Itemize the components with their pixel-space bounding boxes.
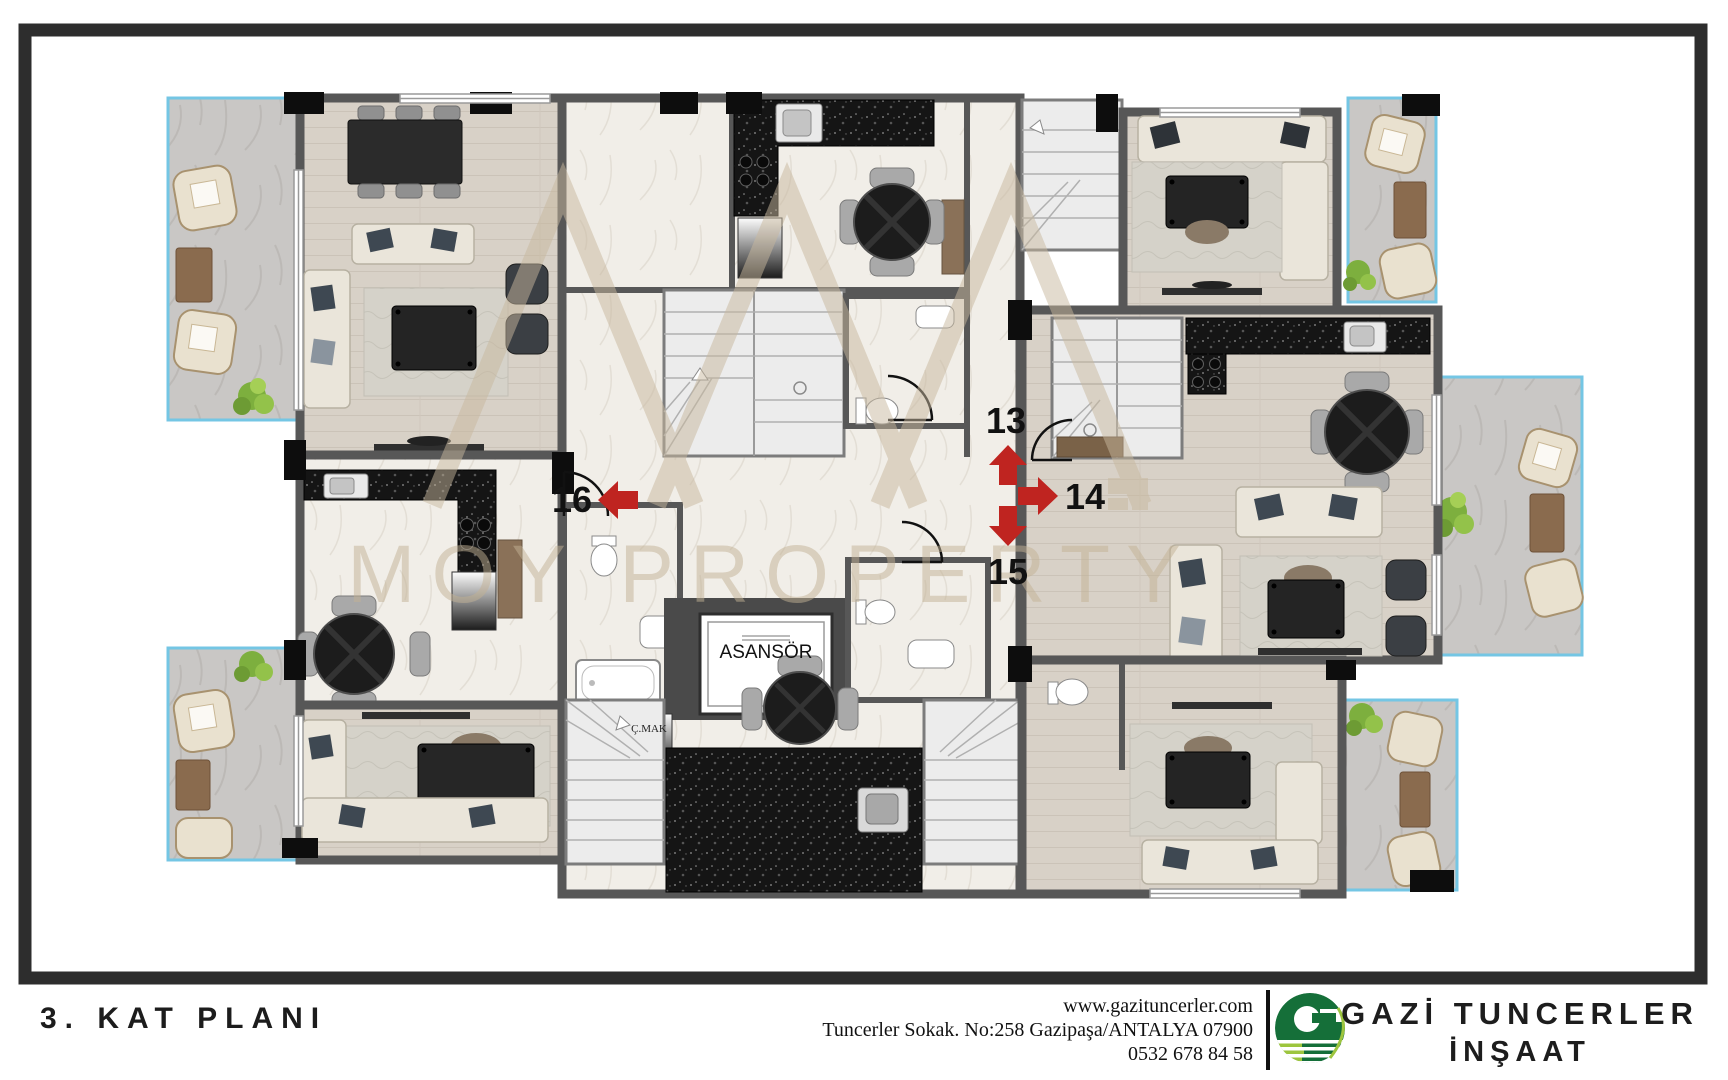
- side-table: [1394, 182, 1426, 238]
- side-table: [1400, 772, 1430, 827]
- cabinet: [942, 200, 964, 274]
- company-name: GAZİ TUNCERLER İNŞAAT: [1341, 996, 1699, 1068]
- unit14-bottom-room: [1022, 660, 1342, 894]
- tv: [1162, 288, 1262, 295]
- lounge-chair: [1385, 709, 1444, 768]
- footer-phone: 0532 678 84 58: [1128, 1043, 1253, 1065]
- company-logo: [1272, 993, 1348, 1065]
- armchair: [1386, 560, 1426, 600]
- floor-title: 3. KAT PLANI: [40, 1002, 327, 1035]
- unit-number-16: 16: [552, 479, 592, 520]
- balcony-top-right: [1343, 98, 1439, 302]
- tv: [362, 712, 470, 719]
- side-table: [176, 248, 212, 302]
- coffee-table: [1268, 580, 1344, 638]
- coffee-table: [1166, 752, 1250, 808]
- unit-number-13: 13: [986, 400, 1026, 441]
- tv: [1172, 702, 1272, 709]
- kitchen-counter: [1186, 318, 1430, 354]
- lounge-chair: [176, 818, 232, 858]
- company-name-line1: GAZİ TUNCERLER: [1341, 996, 1699, 1031]
- balcony-middle-right: [1435, 377, 1586, 655]
- lounge-chair: [1377, 241, 1438, 301]
- sofa: [1280, 162, 1328, 280]
- footer-divider: [1266, 990, 1270, 1070]
- stairs-bottom-right: [924, 700, 1020, 864]
- unit-number-15: 15: [988, 551, 1028, 592]
- watermark-grid-icon: [1108, 478, 1148, 510]
- coffee-table: [392, 306, 476, 370]
- elevator-label: ASANSÖR: [720, 642, 813, 663]
- sofa: [1276, 762, 1322, 844]
- footer-website: www.gazituncerler.com: [1063, 995, 1253, 1017]
- unit13-living-room: [1123, 112, 1337, 310]
- armchair: [1386, 616, 1426, 656]
- footer-address: Tuncerler Sokak. No:258 Gazipaşa/ANTALYA…: [822, 1019, 1253, 1041]
- balcony-bottom-right: [1345, 700, 1457, 890]
- balcony-top-left: [168, 98, 300, 420]
- floor-plan-canvas: MOY PROPERTY 16 13 14 15 ASANSÖR Ç.MAK 3…: [0, 0, 1728, 1080]
- footer-contact: www.gazituncerler.com Tuncerler Sokak. N…: [822, 995, 1253, 1065]
- watermark-text: MOY PROPERTY: [347, 529, 1197, 620]
- side-table: [176, 760, 210, 810]
- unit15-living-room: [300, 705, 562, 860]
- toilet: [1048, 679, 1088, 705]
- balcony-bottom-left: [168, 648, 300, 860]
- side-table: [1530, 494, 1564, 552]
- sofa: [302, 798, 548, 842]
- company-name-line2: İNŞAAT: [1449, 1036, 1591, 1068]
- sink: [908, 640, 954, 668]
- tv: [1258, 648, 1362, 655]
- floor-plan-page: MOY PROPERTY 16 13 14 15 ASANSÖR Ç.MAK 3…: [0, 0, 1728, 1080]
- dining-table: [348, 120, 462, 184]
- ottoman: [1185, 220, 1229, 244]
- unit-number-14: 14: [1065, 476, 1105, 517]
- washer-label: Ç.MAK: [631, 723, 667, 735]
